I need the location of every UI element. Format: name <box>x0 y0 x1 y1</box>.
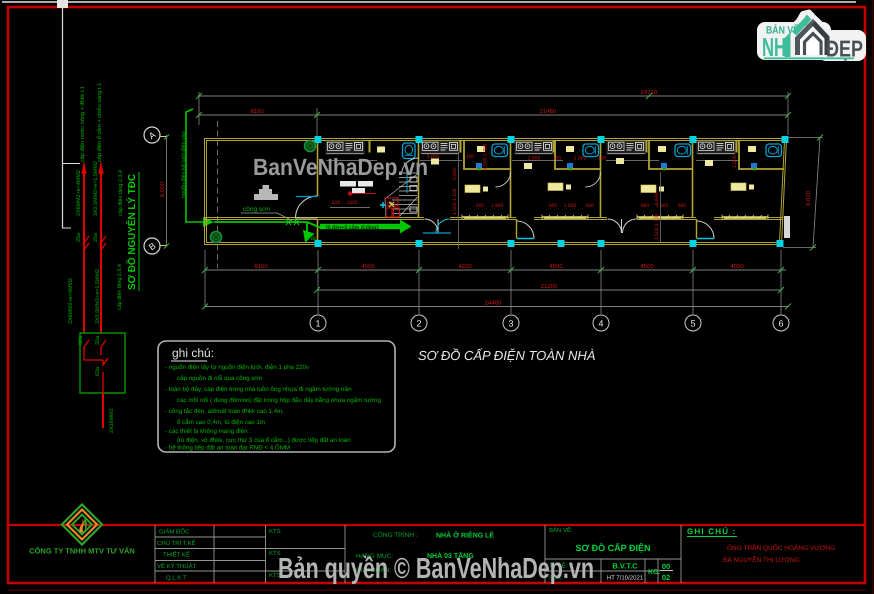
svg-text:Bản quyền © BanVeNhaDep.vn: Bản quyền © BanVeNhaDep.vn <box>278 553 594 585</box>
svg-text:- các thiết bị không mang điện: - các thiết bị không mang điện : <box>165 428 251 435</box>
svg-text:cấp điện tầng 2,3,4: cấp điện tầng 2,3,4 <box>116 264 123 310</box>
svg-text:1.900: 1.900 <box>491 203 504 209</box>
svg-text:- nguồn điện lấy từ nguồn điện: - nguồn điện lấy từ nguồn điện lưới, điệ… <box>165 364 310 371</box>
svg-text:SƠ ĐỒ CẤP ĐIỆN: SƠ ĐỒ CẤP ĐIỆN <box>575 542 650 553</box>
svg-text:8160: 8160 <box>250 108 264 115</box>
svg-text:2X6MM2+e=4MM2: 2X6MM2+e=4MM2 <box>68 278 74 324</box>
svg-text:63a: 63a <box>95 367 101 376</box>
svg-text:3X2,5MM2+e=1,5MM2: 3X2,5MM2+e=1,5MM2 <box>95 269 101 324</box>
svg-text:4500: 4500 <box>640 263 654 270</box>
svg-text:BÀ NGUYỄN THỊ LƯƠNG: BÀ NGUYỄN THỊ LƯƠNG <box>723 556 800 564</box>
svg-text:BẢN VẼ:: BẢN VẼ: <box>549 526 573 534</box>
svg-text:cấp điện nước nóng + đhkk t.1: cấp điện nước nóng + đhkk t.1 <box>79 86 86 162</box>
svg-text:2X6MM2+e=4MM2: 2X6MM2+e=4MM2 <box>76 170 82 216</box>
svg-text:- toàn bộ dây, cáp điện trong: - toàn bộ dây, cáp điện trong nhà luồn ố… <box>165 386 352 393</box>
svg-text:32a: 32a <box>78 336 84 345</box>
svg-text:21460: 21460 <box>540 108 557 115</box>
svg-text:4: 4 <box>598 319 603 329</box>
svg-text:3.000: 3.000 <box>427 154 440 160</box>
svg-text:HT 7/10/2021: HT 7/10/2021 <box>607 575 644 582</box>
svg-text:CÔNG TY TNHH MTV TƯ VẤN: CÔNG TY TNHH MTV TƯ VẤN <box>29 547 135 556</box>
svg-text:8160: 8160 <box>254 263 268 270</box>
svg-text:02: 02 <box>662 573 670 582</box>
svg-text:cấp điện ổ cắm + chiếu sáng t.: cấp điện ổ cắm + chiếu sáng t.1 <box>96 83 103 162</box>
svg-text:5.660: 5.660 <box>654 192 660 205</box>
svg-text:1.500: 1.500 <box>732 155 738 168</box>
svg-text:SƠ ĐỒ CẤP ĐIỆN TOÀN NHÀ: SƠ ĐỒ CẤP ĐIỆN TOÀN NHÀ <box>418 348 596 363</box>
svg-text:600: 600 <box>476 203 485 209</box>
svg-text:SƠ ĐỒ NGUYÊN LÝ TĐC: SƠ ĐỒ NGUYÊN LÝ TĐC <box>126 174 138 290</box>
svg-text:4600: 4600 <box>361 263 375 270</box>
svg-text:600: 600 <box>641 203 650 209</box>
svg-text:- công tắc đèn, atômát toàn đh: - công tắc đèn, atômát toàn đhkk cao 1,4… <box>165 407 284 415</box>
svg-text:các mối nối ( dùng đômino) đặt: các mối nối ( dùng đômino) đặt trong hộp… <box>177 396 381 404</box>
svg-text:600: 600 <box>678 203 687 209</box>
svg-text:Q.L.K.T: Q.L.K.T <box>166 575 187 582</box>
svg-text:25a: 25a <box>93 233 99 242</box>
svg-text:ghi chú:: ghi chú: <box>172 346 214 360</box>
svg-text:100: 100 <box>466 154 475 160</box>
svg-text:5: 5 <box>690 319 695 329</box>
svg-text:6.000: 6.000 <box>159 181 166 197</box>
svg-text:100: 100 <box>598 156 607 162</box>
svg-text:- hệ thống tiếp đất an toàn đạ: - hệ thống tiếp đất an toàn đạt RNĐ < 4 … <box>165 444 290 452</box>
svg-text:21200: 21200 <box>541 283 558 290</box>
svg-text:4000: 4000 <box>730 263 744 270</box>
svg-text:cấp nguồn đi nổi qua công sơn: cấp nguồn đi nổi qua công sơn <box>177 375 262 382</box>
svg-text:5.660: 5.660 <box>452 167 458 180</box>
svg-text:KC:: KC: <box>648 569 660 576</box>
svg-text:2.000: 2.000 <box>528 156 541 162</box>
svg-text:25a: 25a <box>76 233 82 242</box>
svg-text:BanVeNhaDep.vn: BanVeNhaDep.vn <box>253 154 428 180</box>
svg-text:1.900: 1.900 <box>564 203 577 209</box>
svg-text:2.000: 2.000 <box>574 156 587 162</box>
svg-text:8.610: 8.610 <box>805 190 812 206</box>
svg-text:ÔNG TRẦN QUỐC HOÀNG VƯƠNG: ÔNG TRẦN QUỐC HOÀNG VƯƠNG <box>727 544 835 552</box>
svg-text:VẼ KỸ THUẬT: VẼ KỸ THUẬT <box>157 562 197 570</box>
svg-text:THIẾT KẾ: THIẾT KẾ <box>163 551 190 559</box>
svg-text:GHI CHÚ :: GHI CHÚ : <box>687 526 736 536</box>
svg-text:(tủ điện, vỏ đhkk, cực thứ 3 c: (tủ điện, vỏ đhkk, cực thứ 3 của ổ cắm..… <box>177 436 351 444</box>
svg-text:600: 600 <box>549 203 558 209</box>
svg-text:1.500 1.100: 1.500 1.100 <box>452 188 458 215</box>
svg-text:lộ đèn+ổ cắm đ.tầng1: lộ đèn+ổ cắm đ.tầng1 <box>326 224 379 231</box>
svg-text:32a: 32a <box>95 336 101 345</box>
svg-text:24710: 24710 <box>641 89 658 96</box>
svg-text:3: 3 <box>508 319 513 329</box>
svg-text:828: 828 <box>332 200 341 206</box>
svg-text:00: 00 <box>662 562 670 571</box>
svg-text:2X16MM2: 2X16MM2 <box>109 408 115 433</box>
svg-text:B.V.T.C: B.V.T.C <box>612 562 638 571</box>
svg-text:3X2,5MM2+e=1,5MM2: 3X2,5MM2+e=1,5MM2 <box>93 161 99 216</box>
svg-text:1: 1 <box>315 319 320 329</box>
svg-text:1.500 1.300: 1.500 1.300 <box>483 143 489 170</box>
svg-text:6: 6 <box>778 319 783 329</box>
svg-text:ổ cắm cao 0,4m, tủ điện cao 1m: ổ cắm cao 0,4m, tủ điện cao 1m <box>177 418 265 426</box>
svg-text:100: 100 <box>553 156 562 162</box>
svg-text:CHỦ TRÌ T.KẾ: CHỦ TRÌ T.KẾ <box>157 539 195 547</box>
svg-text:đc: đc <box>311 236 317 242</box>
svg-text:4500: 4500 <box>549 263 563 270</box>
svg-text:KTS: KTS <box>269 528 281 535</box>
svg-text:1.500 1.100: 1.500 1.100 <box>654 213 660 240</box>
svg-text:GIÁM ĐỐC: GIÁM ĐỐC <box>159 528 190 536</box>
svg-text:600: 600 <box>586 203 595 209</box>
svg-text:CÔNG TRÌNH :: CÔNG TRÌNH : <box>373 531 418 539</box>
svg-text:24480: 24480 <box>485 300 502 307</box>
svg-text:2: 2 <box>416 319 421 329</box>
svg-text:nguồn điện kế lưới điện vào: nguồn điện kế lưới điện vào <box>180 131 187 198</box>
svg-text:1600: 1600 <box>346 200 357 206</box>
svg-text:NHÀ Ở RIÊNG LẺ: NHÀ Ở RIÊNG LẺ <box>436 531 494 540</box>
svg-text:cấp điện tầng 2,3,4: cấp điện tầng 2,3,4 <box>117 170 124 216</box>
svg-text:4200: 4200 <box>458 263 472 270</box>
svg-text:công sơn: công sơn <box>243 206 270 213</box>
